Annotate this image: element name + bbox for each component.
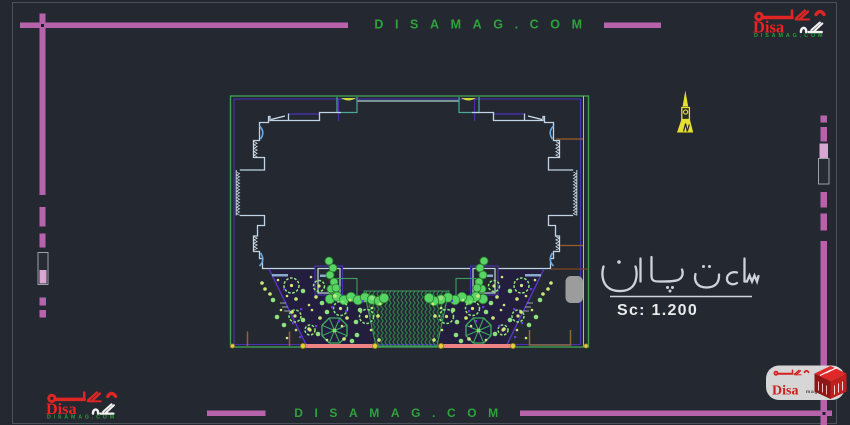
svg-text:DISAMAG.COM: DISAMAG.COM <box>47 414 117 420</box>
svg-text:DISAMAG.COM: DISAMAG.COM <box>294 406 510 420</box>
svg-text:DISAMAG.COM: DISAMAG.COM <box>754 33 825 39</box>
svg-text:Sc: 1.200: Sc: 1.200 <box>617 302 698 319</box>
svg-text:DISAMAG.COM: DISAMAG.COM <box>374 18 593 32</box>
svg-text:Disa: Disa <box>772 384 798 399</box>
